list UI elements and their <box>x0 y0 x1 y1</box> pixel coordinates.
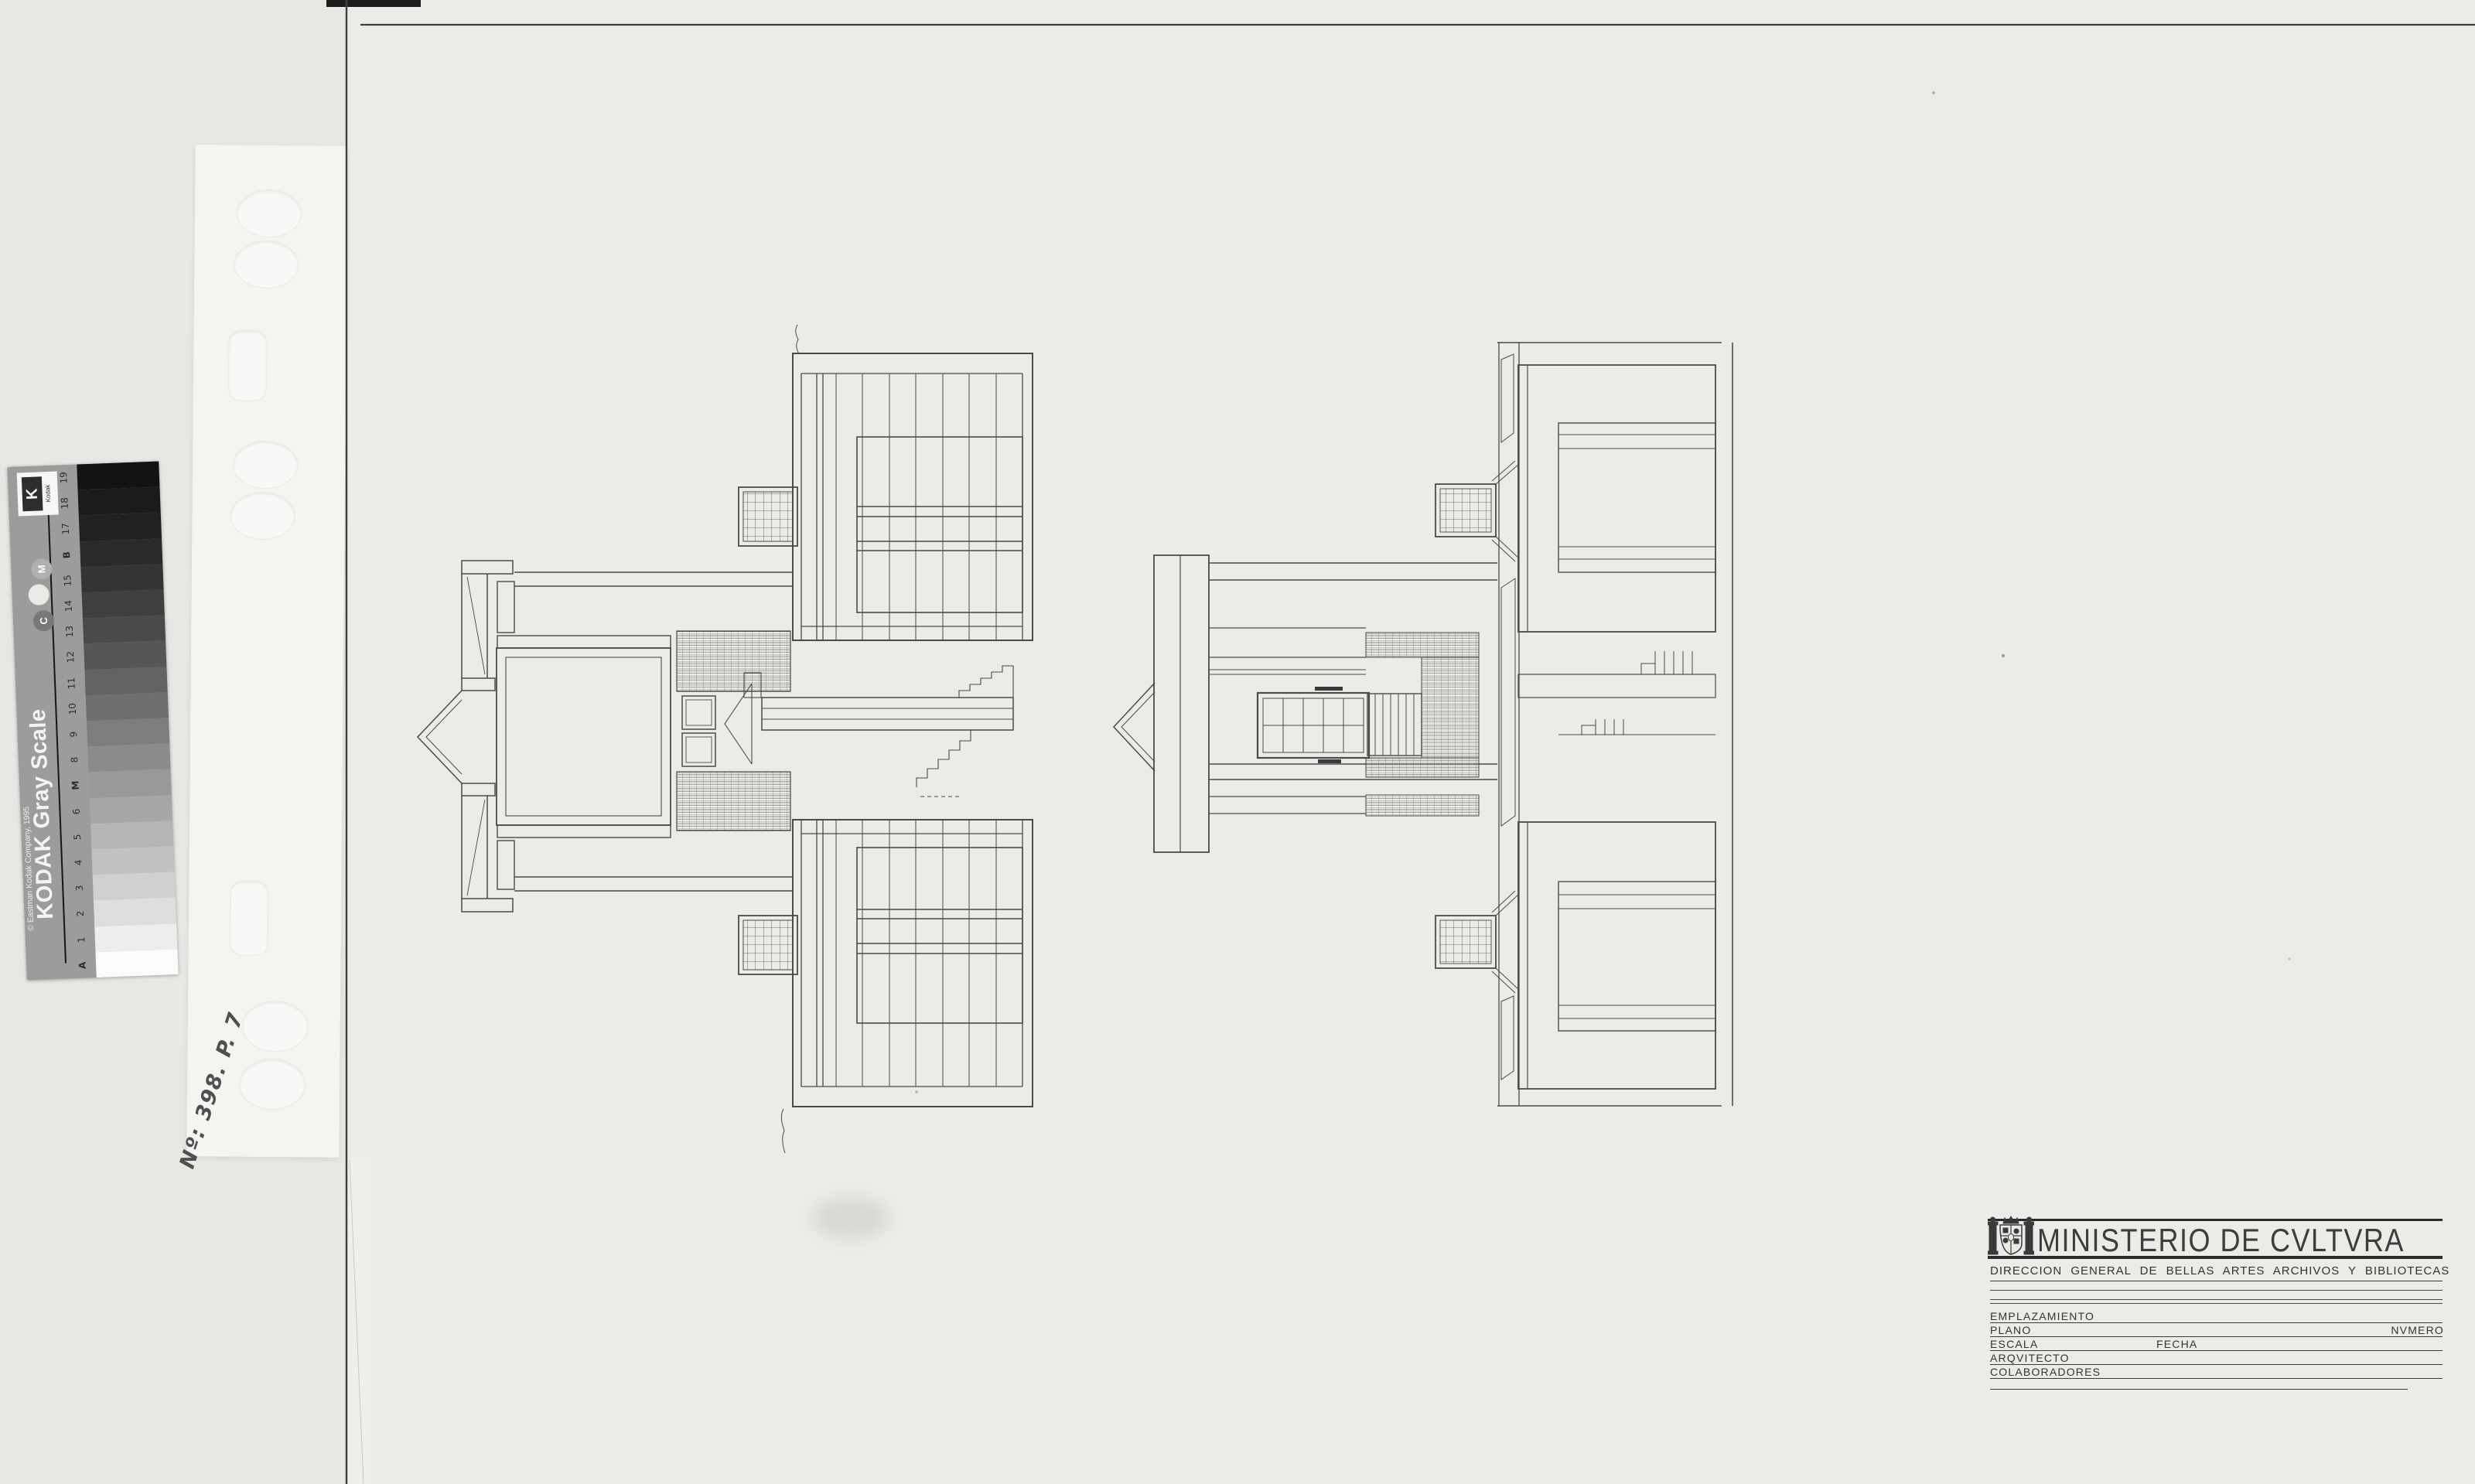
rule-line <box>1990 1389 2408 1390</box>
field-plano: PLANO <box>1990 1324 2031 1336</box>
title-block-top-bar <box>1988 1219 2443 1221</box>
paper-marks <box>814 91 2291 1238</box>
rule-line <box>1990 1290 2443 1291</box>
spain-coat-of-arms <box>1988 1216 2034 1259</box>
rule-line <box>1990 1336 2443 1337</box>
department-title: DIRECCION GENERAL DE BELLAS ARTES ARCHIV… <box>1990 1264 2449 1278</box>
section-drawing-right <box>1114 343 1732 1106</box>
field-arquitecto: ARQVITECTO <box>1990 1352 2070 1364</box>
rule-line <box>1990 1303 2443 1304</box>
rule-line <box>1990 1378 2443 1379</box>
field-colaboradores: COLABORADORES <box>1990 1366 2101 1378</box>
scanned-drawing-page: Nº: 398. P. 7 19 18 <box>0 0 2475 1484</box>
floor-plan-left <box>418 325 1033 1153</box>
field-fecha: FECHA <box>2156 1338 2197 1350</box>
rule-line <box>1990 1364 2443 1365</box>
rule-line <box>1990 1299 2443 1300</box>
title-block-mid-bar <box>1988 1256 2443 1259</box>
field-escala: ESCALA <box>1990 1338 2038 1350</box>
rule-line <box>1990 1281 2443 1281</box>
ministry-title: MINISTERIO DE CVLTVRA <box>2037 1222 2405 1259</box>
title-block: MINISTERIO DE CVLTVRA DIRECCION GENERAL … <box>1988 1213 2447 1398</box>
field-numero: NVMERO <box>2391 1324 2444 1336</box>
rule-line <box>1990 1322 2443 1323</box>
field-emplazamiento: EMPLAZAMIENTO <box>1990 1310 2094 1322</box>
rule-line <box>1990 1350 2443 1351</box>
